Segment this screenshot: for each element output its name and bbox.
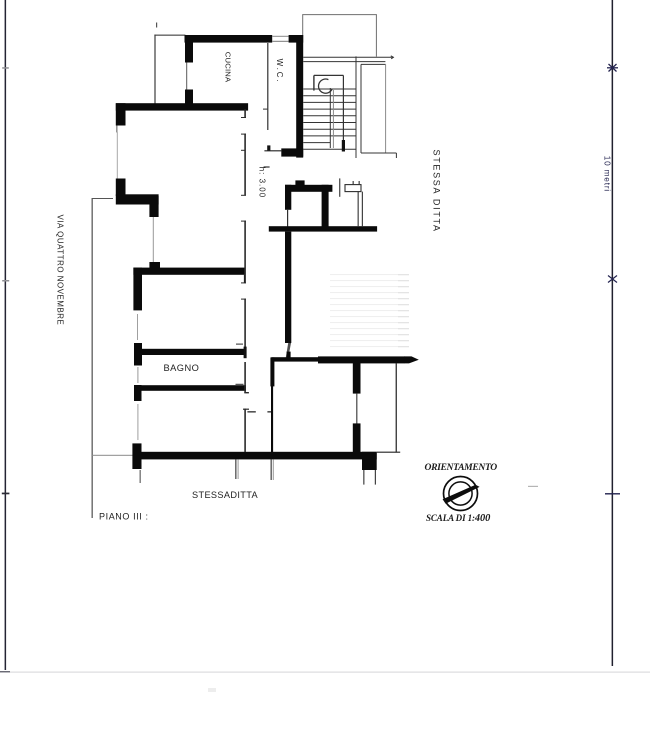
svg-text:W.C.: W.C.	[275, 59, 284, 84]
svg-text:BAGNO: BAGNO	[164, 363, 200, 373]
svg-text:PIANO III :: PIANO III :	[99, 512, 149, 522]
svg-text:STESSA DITTA: STESSA DITTA	[432, 150, 442, 233]
svg-text:ORIENTAMENTO: ORIENTAMENTO	[425, 462, 498, 473]
svg-text:VIA QUATTRO NOVEMBRE: VIA QUATTRO NOVEMBRE	[56, 215, 65, 326]
svg-text:CUCINA: CUCINA	[224, 52, 233, 83]
svg-text:SCALA DI 1:400: SCALA DI 1:400	[426, 513, 491, 524]
svg-text:10 metri: 10 metri	[603, 156, 612, 192]
svg-text:STESSADITTA: STESSADITTA	[192, 490, 258, 500]
svg-text:h: 3.00: h: 3.00	[258, 167, 267, 198]
